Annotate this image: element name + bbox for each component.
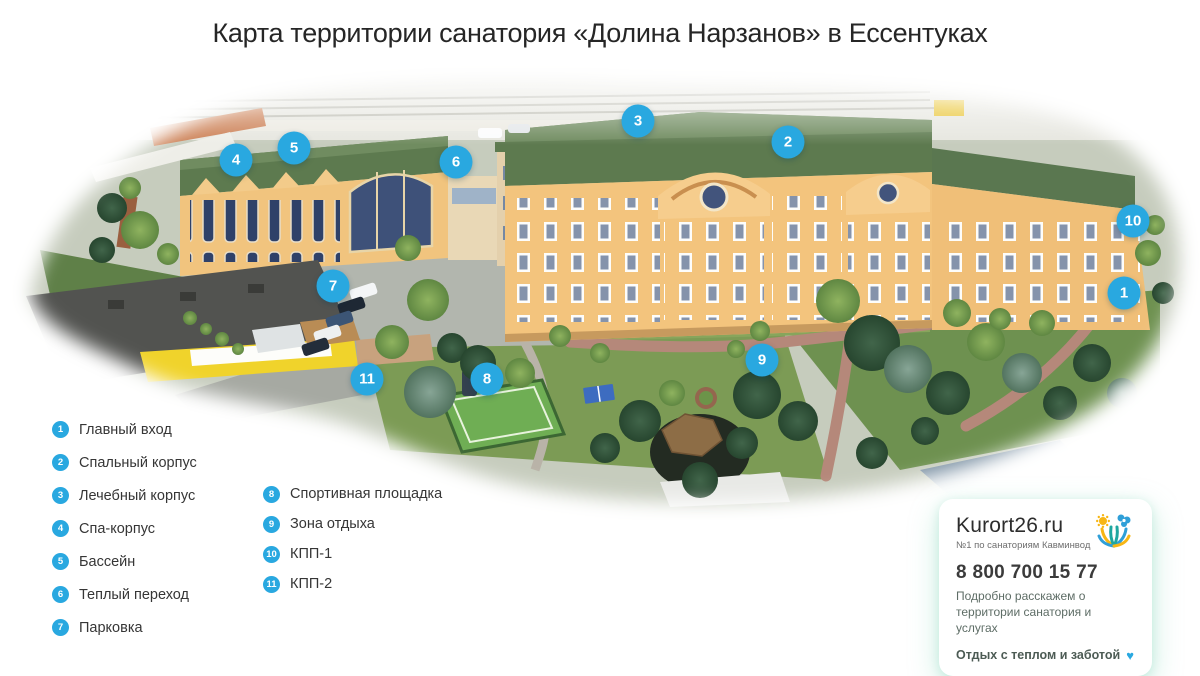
map-marker-6: 6 xyxy=(440,146,473,179)
legend-label-7: Парковка xyxy=(79,620,143,636)
legend-label-11: КПП-2 xyxy=(290,576,332,592)
legend-marker-7: 7 xyxy=(52,619,69,636)
legend-marker-1: 1 xyxy=(52,421,69,438)
legend-item-2: 2 Спальный корпус xyxy=(52,446,197,479)
legend-label-5: Бассейн xyxy=(79,554,135,570)
map-marker-4: 4 xyxy=(220,144,253,177)
legend-item-6: 6 Теплый переход xyxy=(52,578,197,611)
legend-marker-6: 6 xyxy=(52,586,69,603)
legend-label-3: Лечебный корпус xyxy=(79,488,195,504)
legend-label-1: Главный вход xyxy=(79,422,172,438)
legend-item-11: 11 КПП-2 xyxy=(263,569,442,599)
map-marker-1: 1 xyxy=(1108,277,1141,310)
map-marker-5: 5 xyxy=(278,132,311,165)
brand-infocard: Kurort26.ru №1 по санаториям Кавминвод xyxy=(939,499,1152,676)
legend-marker-8: 8 xyxy=(263,486,280,503)
legend-marker-5: 5 xyxy=(52,553,69,570)
infocard-slogan: Отдых с теплом и заботой xyxy=(956,648,1120,662)
legend-item-10: 10 КПП-1 xyxy=(263,539,442,569)
kurort26-logo-icon xyxy=(1093,512,1135,552)
brand-tagline: №1 по санаториям Кавминвод xyxy=(956,540,1090,551)
legend-label-10: КПП-1 xyxy=(290,546,332,562)
legend-label-9: Зона отдыха xyxy=(290,516,375,532)
map-marker-9: 9 xyxy=(746,344,779,377)
legend-item-3: 3 Лечебный корпус xyxy=(52,479,197,512)
legend-label-6: Теплый переход xyxy=(79,587,189,603)
legend-label-4: Спа-корпус xyxy=(79,521,155,537)
legend-item-5: 5 Бассейн xyxy=(52,545,197,578)
legend-column-2: 8 Спортивная площадка 9 Зона отдыха 10 К… xyxy=(263,479,442,599)
brand-name: Kurort26.ru xyxy=(956,514,1090,538)
legend-label-2: Спальный корпус xyxy=(79,455,197,471)
main-corpus xyxy=(505,112,932,342)
map-marker-8: 8 xyxy=(471,363,504,396)
map-marker-7: 7 xyxy=(317,270,350,303)
legend-item-1: 1 Главный вход xyxy=(52,413,197,446)
legend-column-1: 1 Главный вход 2 Спальный корпус 3 Лечеб… xyxy=(52,413,197,644)
legend-marker-10: 10 xyxy=(263,546,280,563)
legend-item-4: 4 Спа-корпус xyxy=(52,512,197,545)
legend-label-8: Спортивная площадка xyxy=(290,486,442,502)
legend-item-8: 8 Спортивная площадка xyxy=(263,479,442,509)
legend-marker-2: 2 xyxy=(52,454,69,471)
legend-item-9: 9 Зона отдыха xyxy=(263,509,442,539)
legend-marker-9: 9 xyxy=(263,516,280,533)
map-marker-2: 2 xyxy=(772,126,805,159)
legend-marker-3: 3 xyxy=(52,487,69,504)
map-marker-10: 10 xyxy=(1117,205,1150,238)
phone-number: 8 800 700 15 77 xyxy=(956,562,1135,584)
legend-marker-11: 11 xyxy=(263,576,280,593)
legend-item-7: 7 Парковка xyxy=(52,611,197,644)
heart-icon: ♥ xyxy=(1126,648,1134,663)
legend-marker-4: 4 xyxy=(52,520,69,537)
map-marker-3: 3 xyxy=(622,105,655,138)
infocard-description: Подробно расскажем о территории санатори… xyxy=(956,588,1135,637)
map-marker-11: 11 xyxy=(351,363,384,396)
